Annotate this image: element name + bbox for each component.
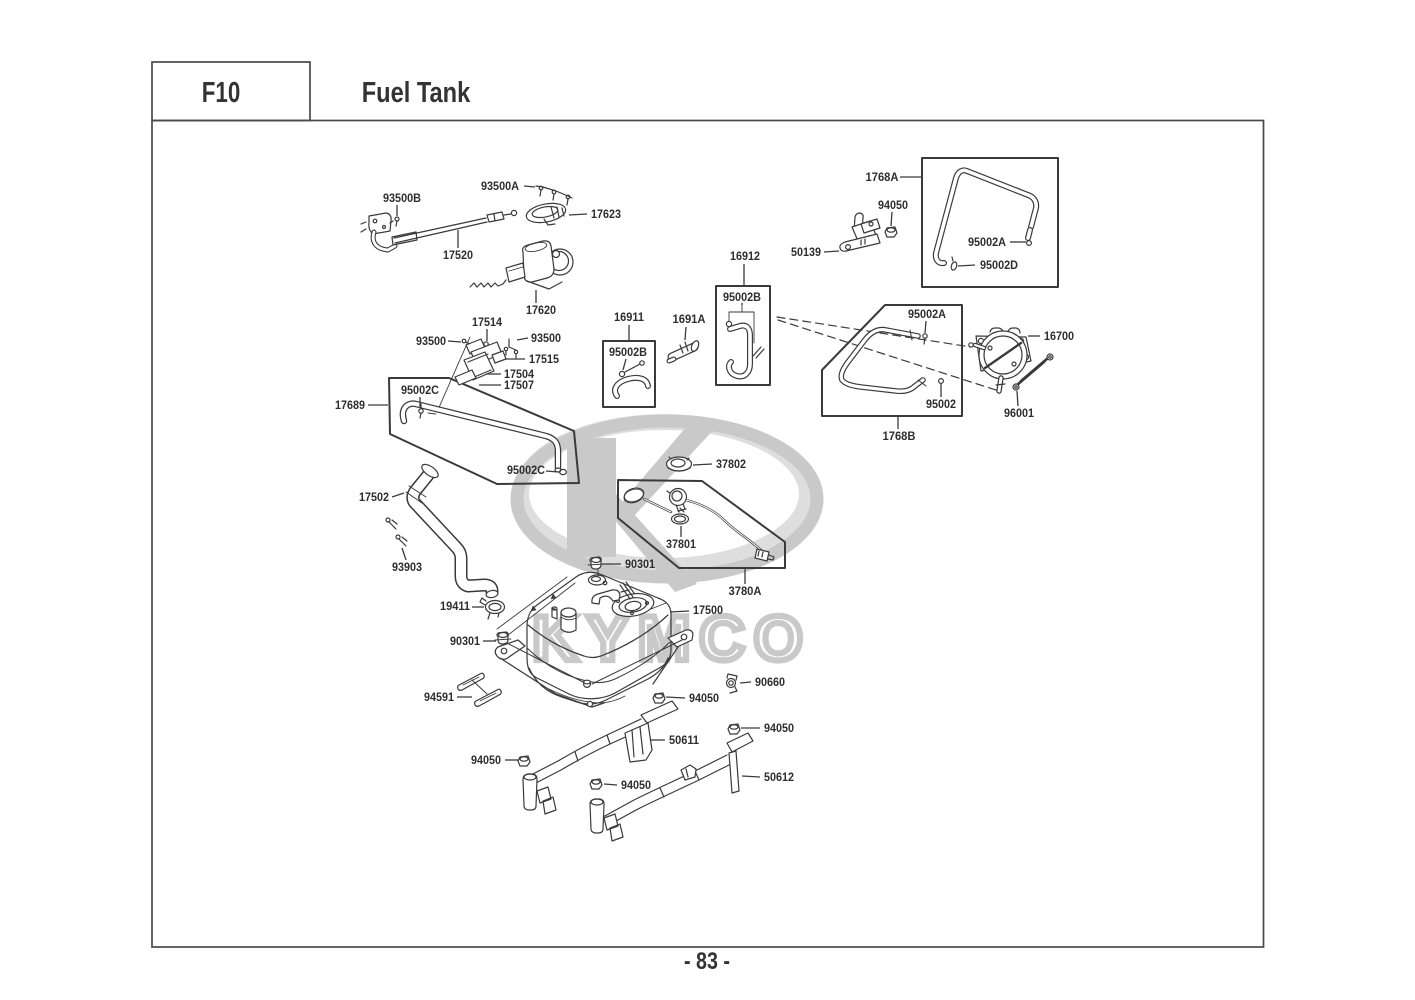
svg-text:17520: 17520 (443, 250, 473, 262)
svg-text:95002A: 95002A (908, 309, 946, 321)
svg-text:16700: 16700 (1044, 331, 1074, 343)
svg-text:17500: 17500 (693, 605, 723, 617)
svg-text:16912: 16912 (730, 251, 760, 263)
svg-text:1768B: 1768B (883, 431, 916, 443)
svg-text:93500: 93500 (531, 333, 561, 345)
svg-text:50611: 50611 (669, 735, 700, 747)
svg-text:17623: 17623 (591, 209, 621, 221)
svg-text:90301: 90301 (450, 636, 481, 648)
svg-text:37801: 37801 (666, 539, 697, 551)
svg-text:94050: 94050 (689, 693, 719, 705)
svg-text:95002C: 95002C (401, 385, 439, 397)
svg-text:94050: 94050 (878, 200, 908, 212)
svg-text:3780A: 3780A (729, 586, 762, 598)
svg-text:95002D: 95002D (980, 260, 1018, 272)
svg-text:19411: 19411 (440, 601, 471, 613)
svg-text:93903: 93903 (392, 562, 422, 574)
svg-text:17515: 17515 (529, 354, 560, 366)
svg-text:Fuel Tank: Fuel Tank (362, 77, 471, 109)
svg-text:95002B: 95002B (609, 347, 647, 359)
svg-text:94050: 94050 (621, 780, 651, 792)
svg-text:93500: 93500 (416, 336, 446, 348)
svg-text:1691A: 1691A (673, 314, 706, 326)
svg-text:F10: F10 (202, 77, 241, 109)
svg-text:95002C: 95002C (507, 465, 545, 477)
svg-text:- 83 -: - 83 - (684, 948, 730, 975)
svg-text:96001: 96001 (1004, 408, 1035, 420)
svg-text:90301: 90301 (625, 559, 656, 571)
svg-text:17502: 17502 (359, 492, 389, 504)
svg-text:95002A: 95002A (968, 237, 1006, 249)
svg-text:17507: 17507 (504, 380, 534, 392)
svg-text:93500B: 93500B (383, 193, 421, 205)
svg-text:1768A: 1768A (866, 172, 899, 184)
svg-text:93500A: 93500A (481, 181, 519, 193)
svg-text:17689: 17689 (335, 400, 365, 412)
svg-text:50612: 50612 (764, 772, 794, 784)
svg-text:37802: 37802 (716, 459, 746, 471)
svg-text:90660: 90660 (755, 677, 785, 689)
svg-text:95002B: 95002B (723, 292, 761, 304)
svg-text:95002: 95002 (926, 399, 956, 411)
svg-text:94591: 94591 (424, 692, 455, 704)
svg-text:16911: 16911 (614, 312, 645, 324)
svg-text:94050: 94050 (764, 723, 794, 735)
svg-text:17620: 17620 (526, 305, 556, 317)
svg-text:50139: 50139 (791, 247, 821, 259)
svg-text:17514: 17514 (472, 317, 503, 329)
svg-text:94050: 94050 (471, 755, 501, 767)
